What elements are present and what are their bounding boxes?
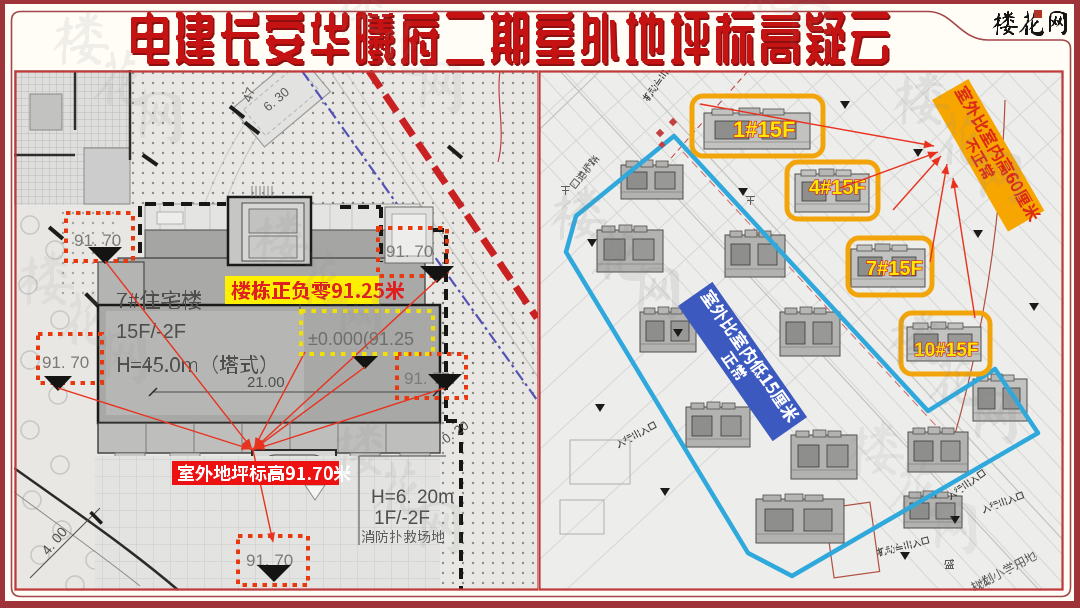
svg-text:15F/-2F: 15F/-2F	[116, 321, 186, 343]
svg-text:10#15F: 10#15F	[914, 340, 978, 361]
svg-text:1F/-2F: 1F/-2F	[374, 508, 430, 529]
svg-text:91. 70: 91. 70	[386, 242, 433, 261]
svg-text:4#15F: 4#15F	[809, 177, 866, 199]
svg-text:21.00: 21.00	[247, 374, 285, 391]
svg-text:91. 70: 91. 70	[42, 353, 89, 372]
svg-text:1#15F: 1#15F	[733, 117, 795, 142]
svg-text:7#15F: 7#15F	[866, 258, 923, 280]
svg-text:±0.000(91.25: ±0.000(91.25	[308, 329, 414, 349]
svg-text:H=6. 20m: H=6. 20m	[371, 487, 454, 508]
